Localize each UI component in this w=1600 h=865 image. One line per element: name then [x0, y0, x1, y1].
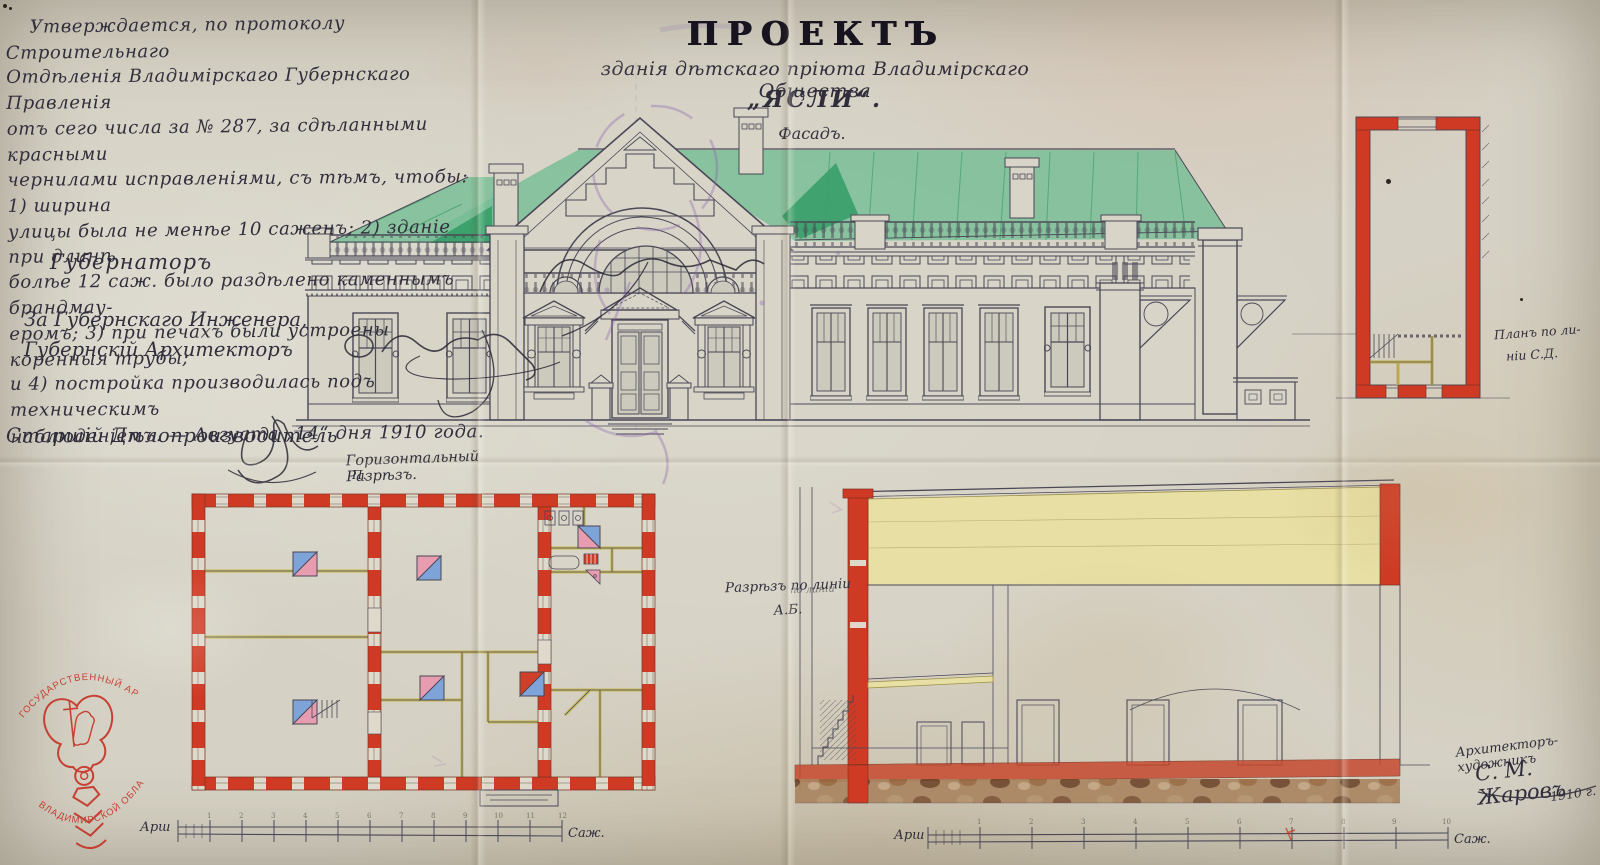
stamp-emblem	[42, 694, 126, 852]
scale-tick-number: 1	[207, 812, 211, 820]
approval-note: Утверждается, по протоколу Строительнаго…	[5, 9, 488, 450]
ink-speck	[9, 7, 12, 10]
scale-right-end-label: Саж.	[1454, 832, 1491, 847]
scale-tick-number: 7	[399, 812, 403, 820]
scale-tick-number: 12	[558, 812, 567, 820]
scale-tick-number: 1	[977, 818, 981, 826]
project-name: „ЯСЛИ“.	[700, 86, 930, 113]
project-title: ПРОЕКТЪ	[640, 14, 992, 53]
scale-tick-number: 6	[367, 812, 371, 820]
fold-crease	[470, 0, 486, 865]
engineer-label-line1: За Губернскаго Инженера,	[24, 308, 307, 331]
scale-left-end-label: Саж.	[568, 826, 605, 841]
approval-line: Утверждается, по протоколу Строительнаго	[5, 9, 484, 66]
scale-tick-number: 7	[1289, 818, 1293, 826]
paper-stain	[420, 10, 660, 120]
ink-speck	[1386, 179, 1391, 184]
approval-line: чернилами исправленіями, съ тѣмъ, чтобы:…	[7, 164, 485, 219]
engineer-label-line2: Губернскій Архитекторъ	[24, 338, 293, 361]
scale-tick-number: 3	[271, 812, 275, 820]
scale-bar-right	[928, 827, 1448, 849]
drawing-sheet: ГОСУДАРСТВЕННЫЙ АРХИВ ВЛАДИМИРСКОЙ ОБЛАС…	[0, 0, 1600, 865]
paper-stain	[940, 560, 1280, 750]
governor-label: Губернаторъ	[50, 250, 212, 274]
paper-stain	[1280, 420, 1540, 580]
approval-line: Отдѣленія Владимірскаго Губернскаго Прав…	[6, 61, 484, 116]
scale-tick-number: 10	[1442, 818, 1451, 826]
scale-tick-number: 2	[1029, 818, 1033, 826]
scale-right-start-label: Арш	[894, 828, 924, 843]
scale-tick-number: 4	[1133, 818, 1137, 826]
facade-label: Фасадъ.	[752, 124, 872, 143]
scale-tick-number: 3	[1081, 818, 1085, 826]
paper-stain	[60, 560, 280, 700]
scale-left-start-label: Арш	[140, 820, 170, 835]
scale-tick-number: 9	[1392, 818, 1396, 826]
scale-tick-number: 8	[431, 812, 435, 820]
approval-line: и 4) постройка производилась подъ технич…	[10, 368, 488, 423]
side-plan-drawing	[1336, 117, 1510, 398]
scale-tick-number: 9	[463, 812, 467, 820]
scale-tick-number: 4	[303, 812, 307, 820]
ink-speck	[1520, 298, 1523, 301]
fold-crease	[780, 0, 796, 865]
clerk-label: Старшій Дѣлопроизводитель	[6, 424, 338, 447]
scale-tick-number: 2	[239, 812, 243, 820]
floor-plan-sublabel: П.	[352, 468, 366, 482]
scale-tick-number: 11	[526, 812, 535, 820]
scale-tick-number: 10	[494, 812, 503, 820]
approval-line: отъ сего числа за № 287, за сдѣланными к…	[7, 111, 486, 168]
scale-tick-number: 5	[335, 812, 339, 820]
ink-speck	[3, 4, 7, 8]
scale-bar-left	[178, 820, 562, 842]
scale-tick-number: 6	[1237, 818, 1241, 826]
scale-tick-number: 5	[1185, 818, 1189, 826]
